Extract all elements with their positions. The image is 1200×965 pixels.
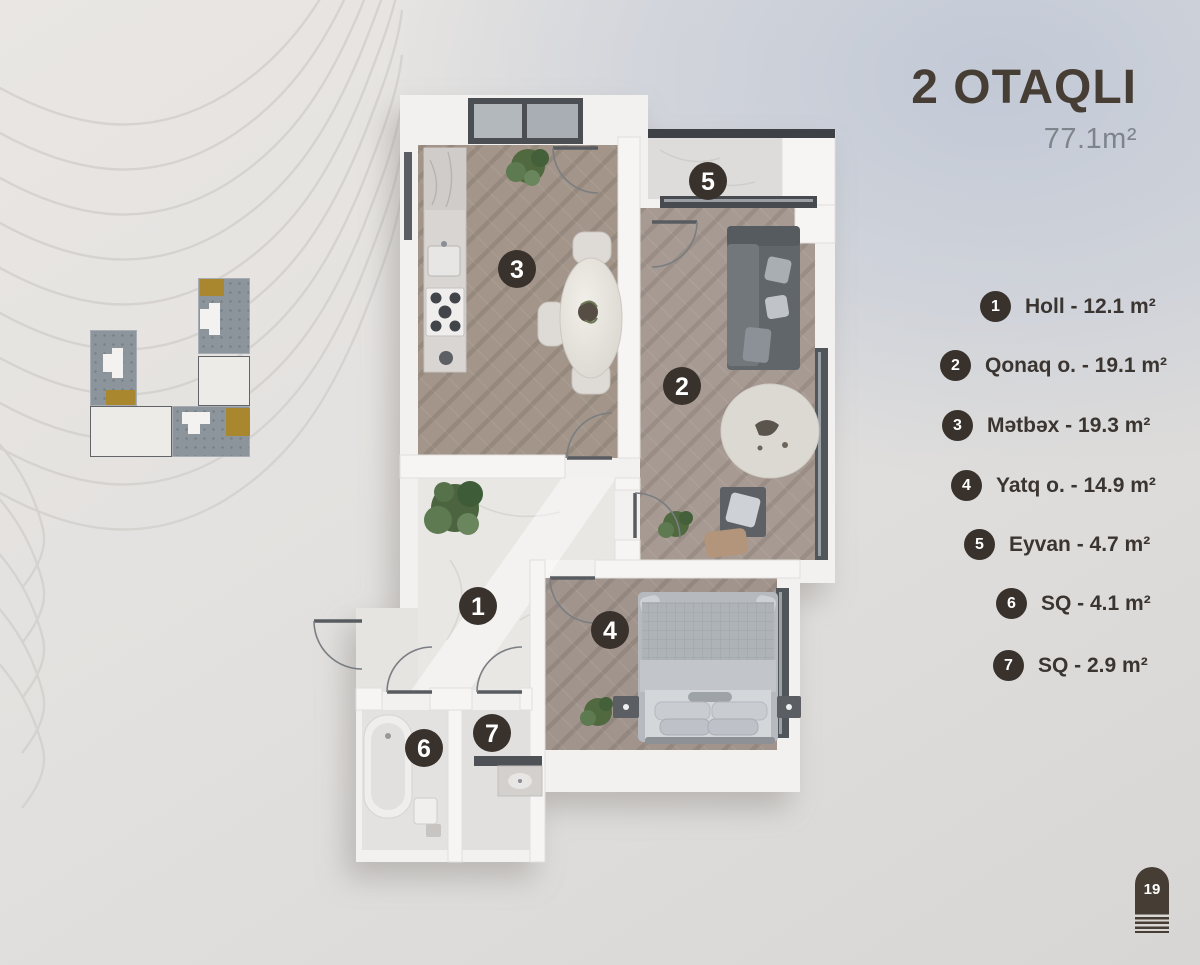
entrance-door-arc	[314, 621, 362, 669]
room-marker-5: 5	[689, 162, 727, 200]
page-number-badge: 19	[1135, 867, 1169, 933]
room-marker-7: 7	[473, 714, 511, 752]
total-area: 77.1m²	[911, 123, 1137, 156]
balcony-parapet-window	[648, 129, 835, 138]
room-marker-2: 2	[663, 367, 701, 405]
svg-text:7: 7	[485, 720, 499, 748]
room-marker-3: 3	[498, 250, 536, 288]
kettle	[439, 351, 453, 365]
brochure-page: { "header": { "title": "2 OTAQLI", "area…	[0, 0, 1200, 965]
armchair	[704, 528, 749, 559]
svg-text:4: 4	[603, 617, 617, 645]
svg-text:6: 6	[417, 735, 431, 763]
svg-text:5: 5	[701, 168, 715, 196]
badge-stripes	[1135, 912, 1169, 931]
svg-text:3: 3	[510, 256, 524, 284]
page-title: 2 OTAQLI	[911, 60, 1137, 115]
wc-counter-edge	[474, 756, 542, 766]
svg-text:2: 2	[675, 373, 689, 401]
page-number: 19	[1135, 867, 1169, 898]
room-marker-4: 4	[591, 611, 629, 649]
bath-sink	[414, 798, 437, 824]
svg-text:1: 1	[471, 593, 485, 621]
living-right-window	[815, 348, 828, 560]
title-block: 2 OTAQLI 77.1m²	[911, 60, 1137, 156]
kitchen-sink	[428, 246, 460, 276]
room-marker-1: 1	[459, 587, 497, 625]
room-marker-6: 6	[405, 729, 443, 767]
kitchen-left-window	[404, 152, 412, 240]
